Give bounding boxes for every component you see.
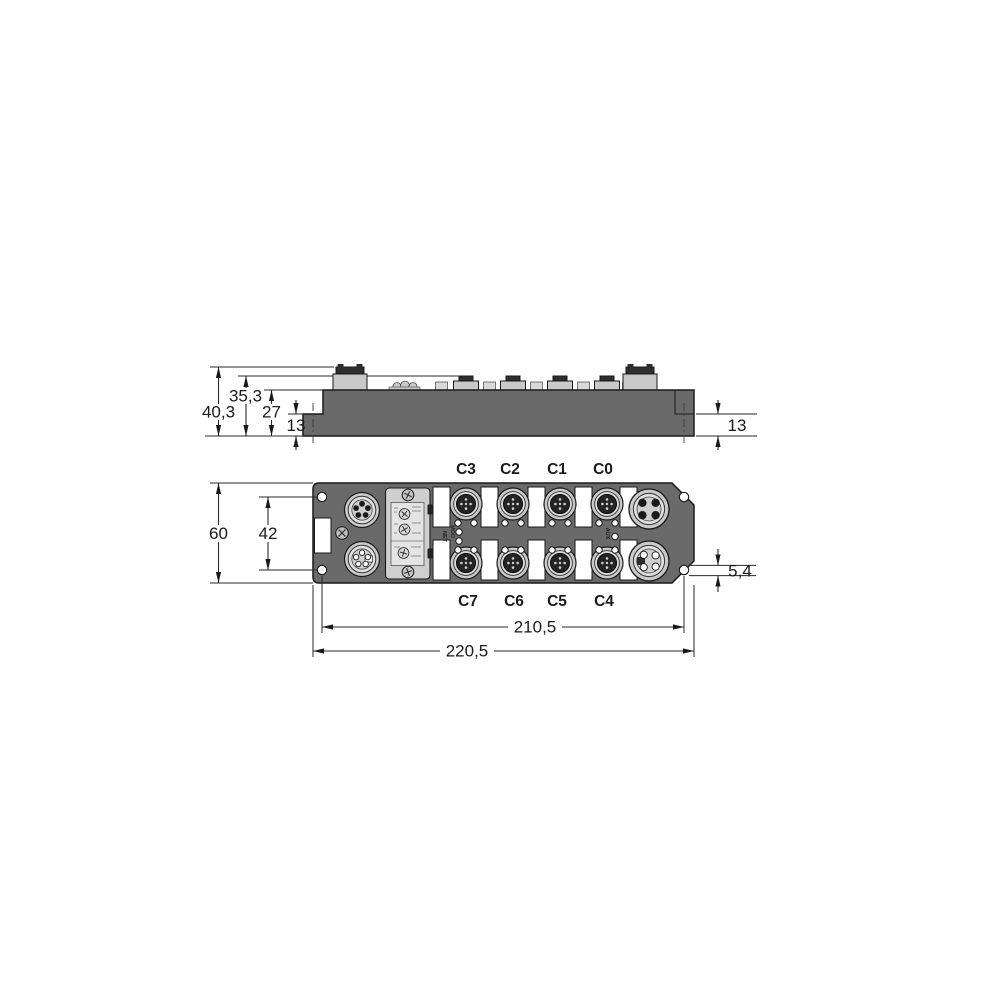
technical-drawing: 40,3 35,3 27 13 13 bbox=[0, 0, 1000, 1000]
dim-hole-spacing-v: 42 bbox=[259, 524, 278, 543]
dim-front-height: 60 bbox=[209, 524, 228, 543]
m12-cap bbox=[600, 376, 614, 381]
drawing-canvas: 40,3 35,3 27 13 13 bbox=[0, 0, 1000, 1000]
net-label: NET bbox=[441, 531, 447, 543]
m12-side bbox=[595, 381, 620, 390]
front-view: NET MOD AUX C3 C2 C1 C0 C7 C6 bbox=[313, 461, 694, 610]
port-label-c3: C3 bbox=[456, 461, 476, 478]
port-c3 bbox=[450, 488, 482, 520]
label-holder-edge bbox=[484, 382, 496, 390]
label-holder-edge bbox=[436, 382, 448, 390]
dim-hole-spacing-h: 210,5 bbox=[514, 618, 557, 637]
m12-cap bbox=[553, 376, 567, 381]
aux-led bbox=[612, 533, 618, 539]
service-panel bbox=[386, 487, 437, 579]
side-housing bbox=[303, 390, 694, 436]
label-holder-edge bbox=[578, 382, 590, 390]
rotary-switch-dome bbox=[389, 381, 420, 390]
port-label-c1: C1 bbox=[547, 461, 567, 478]
dim-overall-width: 220,5 bbox=[446, 642, 489, 661]
dim-hole-diameter: 5,4 bbox=[728, 562, 752, 581]
mounting-hole bbox=[317, 492, 326, 501]
port-c2 bbox=[497, 488, 529, 520]
power-connector-female bbox=[629, 541, 669, 581]
power-connector-male bbox=[629, 489, 669, 529]
port-label-c4: C4 bbox=[594, 593, 614, 610]
port-c1 bbox=[544, 488, 576, 520]
dim-connector-height: 35,3 bbox=[229, 387, 262, 406]
side-label-holder bbox=[315, 518, 332, 553]
dim-body-height: 27 bbox=[262, 403, 281, 422]
port-label-c2: C2 bbox=[500, 461, 520, 478]
label-holder-edge bbox=[531, 382, 543, 390]
side-view bbox=[303, 364, 694, 446]
m12-side bbox=[454, 381, 479, 390]
m12-side bbox=[548, 381, 573, 390]
net-led bbox=[456, 529, 462, 535]
port-label-c5: C5 bbox=[547, 593, 567, 610]
port-label-c6: C6 bbox=[504, 593, 524, 610]
m12-side bbox=[501, 381, 526, 390]
port-label-c7: C7 bbox=[458, 593, 478, 610]
mounting-hole bbox=[317, 565, 326, 574]
mounting-hole bbox=[679, 492, 688, 501]
dim-base-left: 13 bbox=[287, 416, 306, 435]
mod-led bbox=[456, 538, 462, 544]
bus-connector-female bbox=[345, 542, 380, 577]
m12-cap bbox=[459, 376, 473, 381]
aux-label: AUX bbox=[604, 528, 610, 540]
m12-cap bbox=[506, 376, 520, 381]
mounting-hole bbox=[679, 565, 688, 574]
port-label-c0: C0 bbox=[593, 461, 613, 478]
bus-connector-male bbox=[345, 493, 380, 528]
ground-screw bbox=[336, 527, 349, 540]
port-c0 bbox=[591, 488, 623, 520]
mod-label: MOD bbox=[449, 525, 455, 538]
dim-base-right: 13 bbox=[728, 416, 747, 435]
